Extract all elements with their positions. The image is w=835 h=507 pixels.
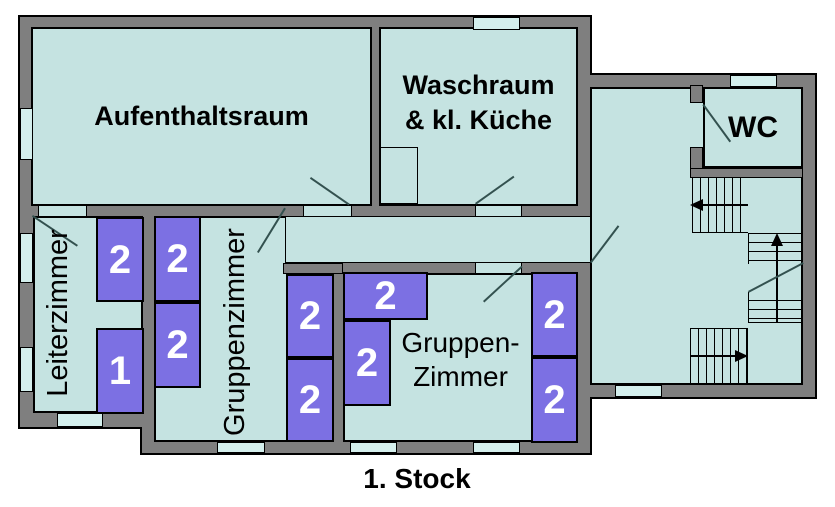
bed: 2: [96, 217, 144, 302]
room-label-gruppenzimmer-mitte: Gruppenzimmer: [215, 222, 255, 442]
floor-plan: 2 1 2 2 2 2 2 2 2 2 Aufenthaltsraum Wasc…: [0, 0, 835, 507]
bed-capacity: 2: [299, 296, 321, 336]
window: [20, 347, 33, 392]
door-opening-aufenthaltsraum: [303, 206, 352, 216]
room-label-waschraum-line1: Waschraum: [402, 68, 554, 103]
room-label-aufenthaltsraum: Aufenthaltsraum: [31, 27, 372, 206]
wall: [283, 263, 343, 274]
window: [350, 442, 397, 453]
room-label-waschraum: Waschraum & kl. Küche: [379, 45, 578, 160]
stairs-right-arrow-icon: [735, 350, 748, 362]
window: [217, 442, 265, 453]
bed-capacity: 2: [374, 276, 396, 316]
room-label-gruppenzimmer-gross-line2: Zimmer: [413, 360, 508, 394]
window: [473, 442, 520, 453]
window: [730, 75, 777, 87]
bed-capacity: 2: [299, 380, 321, 420]
staircase-right-centerline: [776, 240, 778, 323]
bed: 1: [96, 328, 144, 414]
bed-capacity: 2: [166, 325, 188, 365]
window: [473, 17, 520, 30]
room-label-gruppenzimmer-gross: Gruppen- Zimmer: [343, 320, 578, 400]
stairs-up-arrow-icon: [771, 233, 783, 246]
floor-title: 1. Stock: [282, 462, 552, 496]
room-label-gruppenzimmer-gross-line1: Gruppen-: [401, 326, 519, 360]
bed: 2: [154, 302, 201, 388]
stairs-left-arrow-icon: [690, 199, 703, 211]
room-label-wc: WC: [703, 87, 803, 168]
corridor: [285, 216, 580, 263]
bed-capacity: 2: [166, 239, 188, 279]
window: [20, 233, 33, 283]
bed-capacity: 1: [109, 351, 131, 391]
bed: 2: [343, 272, 428, 320]
room-label-waschraum-line2: & kl. Küche: [405, 103, 552, 138]
room-label-leiterzimmer: Leiterzimmer: [38, 203, 78, 423]
bed: 2: [286, 274, 334, 358]
wall: [690, 168, 803, 178]
bed: 2: [154, 216, 201, 302]
door-opening-waschraum: [475, 206, 522, 216]
window: [615, 385, 662, 397]
door-opening-stair-hall: [578, 216, 590, 263]
bed: 2: [286, 358, 334, 442]
door-opening-wc: [690, 102, 703, 148]
bed-capacity: 2: [109, 240, 131, 280]
